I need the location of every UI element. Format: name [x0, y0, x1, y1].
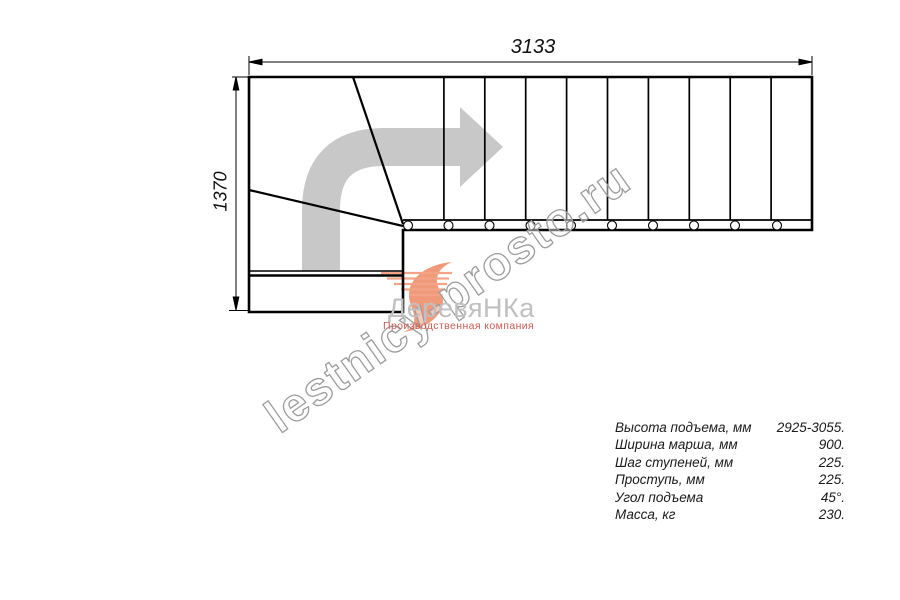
spec-row-mass: Масса, кг 230.: [615, 506, 845, 523]
spec-value: 2925-3055.: [777, 419, 845, 436]
spec-value: 230.: [819, 506, 845, 523]
spec-row-angle: Угол подъема 45°.: [615, 489, 845, 506]
spec-value: 225.: [819, 454, 845, 471]
screenshot-canvas: lestnicy-prosto.ru 3133 1370 ДеревяНКа П…: [0, 0, 900, 600]
dimension-height-label: 1370: [211, 149, 232, 235]
logo-tagline: Производственная компания: [383, 320, 534, 332]
spec-value: 45°.: [821, 489, 845, 506]
dimension-width-label: 3133: [490, 36, 576, 59]
spec-row-height: Высота подъема, мм 2925-3055.: [615, 419, 845, 436]
spec-label: Ширина марша, мм: [615, 436, 738, 453]
spec-label: Масса, кг: [615, 506, 675, 523]
spec-label: Высота подъема, мм: [615, 419, 751, 436]
spec-row-tread: Проступь, мм 225.: [615, 471, 845, 488]
specs-table: Высота подъема, мм 2925-3055. Ширина мар…: [615, 419, 845, 523]
spec-label: Угол подъема: [615, 489, 703, 506]
spec-row-step-pitch: Шаг ступеней, мм 225.: [615, 454, 845, 471]
spec-value: 225.: [819, 471, 845, 488]
spec-row-march-width: Ширина марша, мм 900.: [615, 436, 845, 453]
dimension-height: [229, 77, 249, 311]
spec-label: Шаг ступеней, мм: [615, 454, 733, 471]
spec-value: 900.: [819, 436, 845, 453]
spec-label: Проступь, мм: [615, 471, 705, 488]
